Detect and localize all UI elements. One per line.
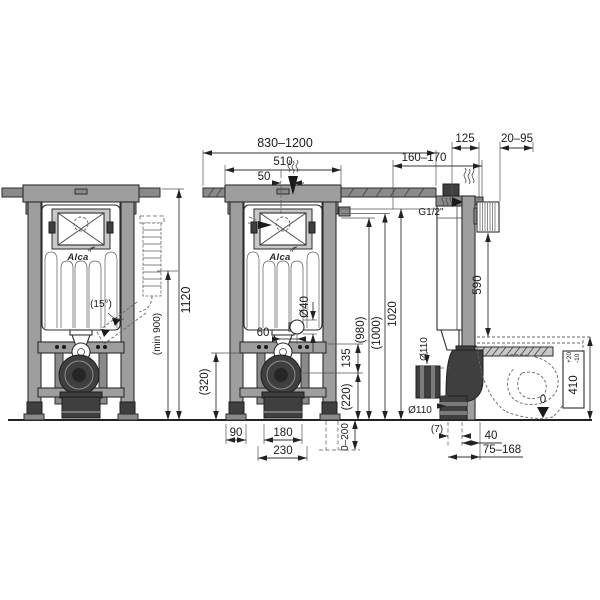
front-view-example: (15°) 1120 (min 900) [2,185,193,420]
vent-lines-icon [464,168,474,184]
label-d110-bottom: Ø110 [408,405,432,416]
dim-230: 230 [273,445,292,457]
side-fitting [339,207,350,216]
dim-320: (320) [199,368,211,395]
dim-0-200: 0–200 [340,423,351,451]
dim-1020: 1020 [387,301,399,327]
side-view: G1/2" 160–170 125 20–95 [393,133,592,460]
wall-rail-left [2,188,24,197]
label-d110-side: Ø110 [419,337,430,361]
drawing-canvas: (15°) 1120 (min 900) 50 [0,0,600,600]
dim-410-plus: +20 [566,352,573,363]
dim-1120: 1120 [179,287,193,314]
dim-40: 40 [485,430,498,442]
flush-side-outlet [290,320,304,334]
dim-90: 90 [230,427,243,439]
dim-125: 125 [455,133,474,145]
dim-410-minus: -10 [574,353,581,363]
bowl-bracket-side [475,347,553,356]
dim-20-95: 20–95 [501,133,533,145]
waste-elbow [446,350,483,402]
dim-160-170: 160–170 [402,152,447,164]
label-zero: 0 [540,394,546,406]
dim-980: (980) [355,316,367,343]
stop-valve [443,184,459,196]
wall-rail-right [138,188,160,197]
dim-75-168: 75–168 [483,444,521,456]
dim-410: 410 [568,375,580,394]
dim-830-1200: 830–1200 [257,136,313,150]
dim-60: 60 [257,327,270,339]
dim-1000: (1000) [371,316,383,349]
dim-135: 135 [341,348,353,367]
dim-510: 510 [273,156,292,168]
label-g12: G1/2" [418,207,444,218]
dim-590: 590 [472,275,484,294]
dim-50: 50 [258,171,271,183]
dim-220: (220) [341,383,353,410]
waste-coupling-piece [416,366,440,398]
dim-7: (7) [431,424,443,435]
dim-180: 180 [273,427,292,439]
insert-arrow [101,329,110,337]
dim-d40: Ø40 [299,296,311,318]
brand-logo: Alca [268,252,290,263]
dim-angle-15: (15°) [90,299,112,310]
flush-actuator-box [474,202,499,232]
installation-drawing: (15°) 1120 (min 900) 50 [0,0,600,600]
waste-floor-coupling [440,396,467,420]
dim-min-900: (min 900) [152,313,163,355]
brand-logo: Alca [66,252,88,263]
zero-datum-icon [537,407,549,418]
wall-rail-left [203,188,226,197]
wall-rail-right [340,188,436,197]
cistern-side [437,206,462,330]
